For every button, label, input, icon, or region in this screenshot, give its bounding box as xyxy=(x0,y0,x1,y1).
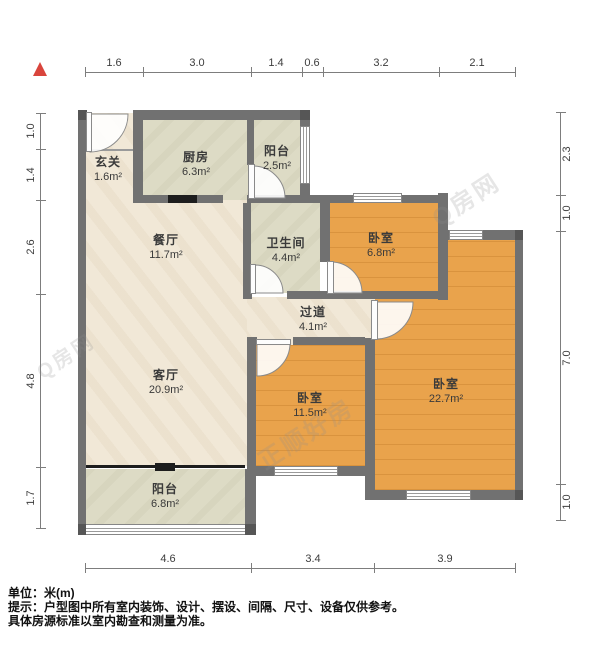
dim-bottom-2: 3.9 xyxy=(437,553,452,565)
bathroom-door-leaf xyxy=(250,264,256,294)
room-label-hallway: 过道4.1m² xyxy=(299,305,327,335)
room-label-bedroom-large: 卧室22.7m² xyxy=(429,377,463,407)
room-label-entry: 玄关1.6m² xyxy=(94,155,122,185)
tip-note: 提示：户型图中所有室内装饰、设计、摆设、间隔、尺寸、设备仅供参考。 xyxy=(8,600,568,614)
bedroom-small-door-leaf xyxy=(327,261,334,294)
floor-plan: 玄关1.6m² 厨房6.3m² 阳台2.5m² 餐厅11.7m² 卫生间4.4m… xyxy=(0,0,600,647)
dim-right-0: 2.3 xyxy=(561,146,573,161)
dim-left-0: 1.0 xyxy=(25,123,37,138)
room-label-bedroom-small: 卧室6.8m² xyxy=(367,231,395,261)
bedroom-mid-door-arc xyxy=(257,343,290,376)
bedroom-mid-door-leaf xyxy=(256,339,291,345)
dim-left-4: 1.7 xyxy=(25,490,37,505)
bedroom-large-door-leaf xyxy=(371,300,378,340)
room-label-balcony-top: 阳台2.5m² xyxy=(263,144,291,174)
dim-right-3: 1.0 xyxy=(561,494,573,509)
bedroom-small-door-arc xyxy=(331,262,362,293)
room-label-bathroom: 卫生间4.4m² xyxy=(266,236,305,266)
footer-notes: 单位：米(m) 提示：户型图中所有室内装饰、设计、摆设、间隔、尺寸、设备仅供参考… xyxy=(8,586,568,628)
dim-left-1: 1.4 xyxy=(25,167,37,182)
bedroom-large-door-arc xyxy=(376,302,413,339)
dim-line-right xyxy=(560,112,561,520)
dim-right-2: 7.0 xyxy=(561,350,573,365)
unit-note: 单位：米(m) xyxy=(8,586,568,600)
dim-top-2: 1.4 xyxy=(268,57,283,69)
room-label-balcony-bottom: 阳台6.8m² xyxy=(151,482,179,512)
dim-line-bottom xyxy=(85,568,515,569)
room-label-dining: 餐厅11.7m² xyxy=(149,233,182,263)
dim-top-3: 0.6 xyxy=(304,57,319,69)
dim-line-left xyxy=(40,113,41,528)
balcony-top-door-leaf xyxy=(248,164,255,199)
dim-left-2: 2.6 xyxy=(25,239,37,254)
dim-bottom-0: 4.6 xyxy=(160,553,175,565)
dim-bottom-1: 3.4 xyxy=(305,553,320,565)
dim-top-1: 3.0 xyxy=(189,57,204,69)
dim-top-0: 1.6 xyxy=(106,57,121,69)
entry-door-arc xyxy=(90,114,128,152)
tip-note-2: 具体房源标准以室内勘查和测量为准。 xyxy=(8,614,568,628)
room-label-kitchen: 厨房6.3m² xyxy=(182,150,210,180)
dim-right-1: 1.0 xyxy=(561,205,573,220)
room-label-living: 客厅20.9m² xyxy=(149,368,183,398)
dim-line-top xyxy=(85,72,515,73)
entry-door-leaf xyxy=(86,112,92,152)
dim-left-3: 4.8 xyxy=(25,373,37,388)
dim-top-5: 2.1 xyxy=(469,57,484,69)
dim-top-4: 3.2 xyxy=(373,57,388,69)
bathroom-door-arc xyxy=(255,265,283,293)
